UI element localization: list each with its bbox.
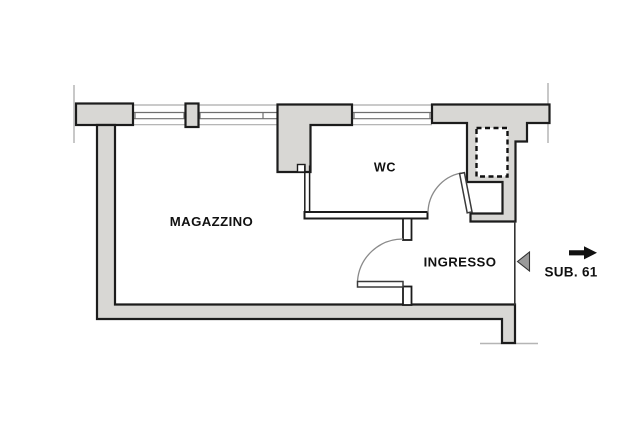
door-jamb-lower [403, 287, 412, 306]
door-leaf-ingresso [358, 282, 404, 288]
wall-pier-top-small [186, 104, 199, 128]
floor-plan: MAGAZZINO WC INGRESSO SUB. 61 [0, 0, 640, 427]
window-top-3 [352, 105, 432, 125]
floor-plan-drawing: MAGAZZINO WC INGRESSO SUB. 61 [0, 0, 640, 427]
wall-block-top-left [76, 104, 133, 126]
window-top-2 [198, 105, 278, 125]
shaft-dashed-box [477, 128, 508, 177]
room-label-magazzino: MAGAZZINO [170, 214, 253, 229]
door-jamb-upper [403, 219, 412, 241]
wall-hinge-notch [298, 165, 306, 173]
room-label-ingresso: INGRESSO [424, 255, 497, 270]
sub-annotation-label: SUB. 61 [544, 265, 597, 280]
door-swing-arc-wc [428, 173, 461, 213]
right-arrow-icon [569, 246, 597, 259]
room-label-wc: WC [374, 161, 396, 175]
entrance-triangle-icon [518, 252, 530, 271]
window-top-1 [133, 105, 186, 125]
door-swing-arc-ingresso [358, 239, 404, 281]
wall-wc-bottom [305, 212, 428, 219]
wall-pier-magazzino-wc [278, 105, 353, 173]
